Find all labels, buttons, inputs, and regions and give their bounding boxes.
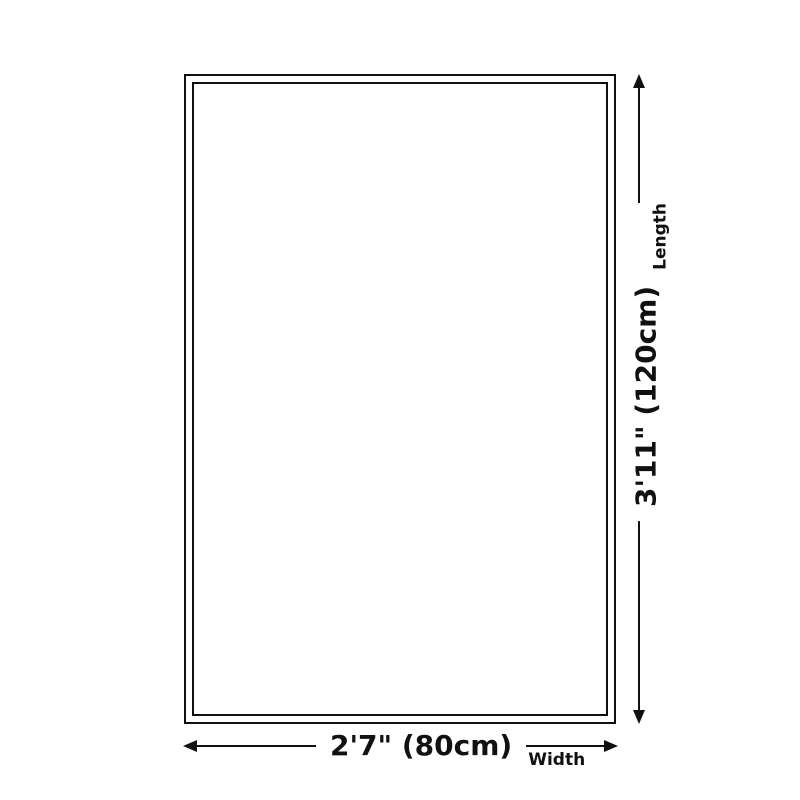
arrow-down-icon <box>633 710 645 724</box>
length-value: 3'11" (120cm) <box>630 272 663 521</box>
product-outline-inner <box>192 82 608 716</box>
product-outline-outer <box>184 74 616 724</box>
length-caption: Length <box>651 203 671 270</box>
width-caption: Width <box>528 750 585 770</box>
length-dimension-line-bottom <box>638 498 640 717</box>
size-diagram-canvas: 3'11" (120cm)Length 2'7" (80cm)Width <box>0 0 800 800</box>
width-dimension-label: 2'7" (80cm)Width <box>316 729 585 762</box>
length-dimension-label: 3'11" (120cm)Length <box>630 203 663 521</box>
arrow-right-icon <box>604 740 618 752</box>
width-value: 2'7" (80cm) <box>316 729 526 762</box>
width-dimension-line-left <box>190 745 316 747</box>
